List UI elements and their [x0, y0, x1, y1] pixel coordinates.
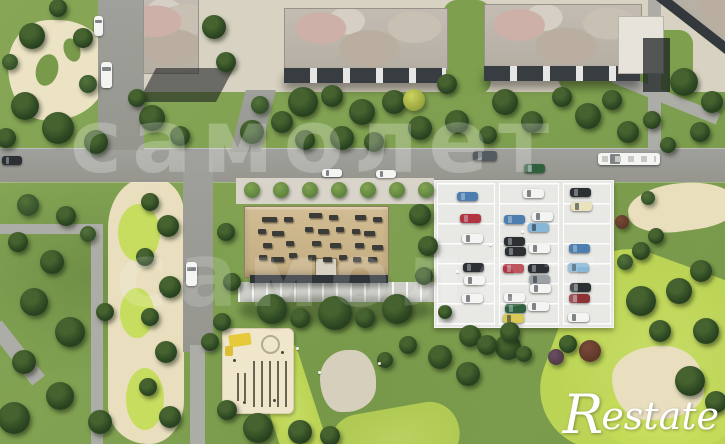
car [569, 244, 590, 253]
car-windshield [380, 171, 383, 177]
tree [273, 182, 289, 198]
car-windshield [461, 193, 464, 200]
rooftop-hvac-unit [352, 229, 360, 234]
lawn-inset-1 [32, 52, 62, 89]
tree [20, 288, 48, 316]
car [530, 284, 551, 293]
tree [705, 391, 725, 413]
rooftop-hvac-unit [262, 217, 277, 222]
tree [701, 91, 723, 113]
rooftop-hvac-unit [272, 231, 284, 236]
car-windshield [574, 189, 577, 196]
car [505, 247, 526, 256]
tree [693, 318, 719, 344]
rooftop-hvac-unit [259, 255, 267, 260]
playground-detail-dot [281, 351, 284, 354]
tree [403, 89, 425, 111]
rooftop-hvac-unit [258, 229, 266, 234]
tree [155, 341, 177, 363]
rooftop-hvac-unit [372, 245, 383, 250]
car [570, 283, 591, 292]
bus [598, 153, 660, 165]
car [570, 188, 591, 197]
playground-carousel [261, 335, 280, 354]
tree [349, 99, 375, 125]
tree [56, 206, 76, 226]
car-windshield [187, 267, 195, 271]
tree [257, 294, 287, 324]
tree [288, 420, 312, 444]
tree [399, 336, 417, 354]
car [571, 202, 592, 211]
car-windshield [532, 303, 535, 310]
tree [55, 317, 85, 347]
playground-pergola [253, 361, 287, 407]
car [529, 275, 550, 284]
car [2, 156, 22, 165]
car [524, 164, 545, 173]
tree [437, 74, 457, 94]
rooftop-hvac-unit [309, 213, 322, 218]
rooftop-hvac-unit [308, 255, 316, 260]
car [504, 215, 525, 224]
tree [217, 223, 235, 241]
tree [84, 130, 108, 154]
tree [552, 87, 572, 107]
tree [355, 308, 375, 328]
apartment-block-2-roof [284, 8, 448, 70]
playground-detail-dot [273, 399, 276, 402]
tree [479, 126, 497, 144]
tree [516, 346, 532, 362]
car-windshield [527, 190, 530, 197]
ground-detail-dot [489, 243, 492, 246]
playground-pergola-2 [237, 373, 249, 401]
tree [202, 15, 226, 39]
rooftop-hvac-unit [330, 243, 341, 248]
ground-detail-dot [378, 362, 381, 365]
tree [240, 120, 264, 144]
tree [548, 349, 564, 365]
car-windshield [102, 67, 110, 71]
tree [251, 96, 269, 114]
rooftop-hvac-unit [364, 231, 375, 236]
tree [492, 89, 518, 115]
sand-patch-center [320, 350, 376, 412]
tree [17, 194, 39, 216]
tree [213, 313, 231, 331]
car-windshield [574, 284, 577, 291]
rooftop-hvac-unit [284, 217, 293, 222]
tree [690, 122, 710, 142]
rooftop-hvac-unit [323, 257, 332, 262]
tree [330, 126, 354, 150]
tree [500, 322, 520, 342]
car-windshield [508, 238, 511, 245]
car [528, 223, 549, 232]
ground-detail-dot [296, 347, 299, 350]
tree [690, 260, 712, 282]
ground-detail-dot [456, 270, 459, 273]
car-windshield [528, 165, 531, 172]
car-windshield [534, 285, 537, 292]
car-windshield [507, 315, 510, 322]
tree [46, 382, 74, 410]
tree [409, 204, 431, 226]
tree [288, 87, 318, 117]
car [473, 151, 497, 161]
car-windshield [466, 235, 469, 242]
car-windshield [95, 20, 102, 23]
rooftop-hvac-unit [271, 257, 284, 262]
tree [139, 378, 157, 396]
ground-detail-dot [318, 371, 321, 374]
tree [141, 308, 159, 326]
tree [141, 193, 159, 211]
car [186, 262, 197, 286]
car [568, 263, 589, 272]
car-windshield [508, 216, 511, 223]
car-windshield [572, 264, 575, 271]
car [462, 294, 483, 303]
car [529, 244, 550, 253]
tree [675, 366, 705, 396]
car [528, 264, 549, 273]
tree [643, 111, 661, 129]
tree [632, 242, 650, 260]
tree [626, 286, 656, 316]
car [532, 212, 553, 221]
car [457, 192, 478, 201]
tree [318, 296, 352, 330]
apartment-block-1-roof [143, 0, 199, 74]
tree [19, 23, 45, 49]
second-road-path-extension [190, 345, 205, 444]
tree [617, 254, 633, 270]
tree [660, 137, 676, 153]
car-windshield [509, 248, 512, 255]
car-windshield [572, 314, 575, 321]
playground-detail-dot [233, 359, 236, 362]
tree [243, 413, 273, 443]
bus-roof-stripes [602, 156, 656, 162]
small-structure-shadow [643, 38, 670, 92]
tree [11, 92, 39, 120]
tree [216, 52, 236, 72]
tree [666, 278, 692, 304]
tree [136, 248, 154, 266]
tree [96, 303, 114, 321]
car-windshield [532, 265, 535, 272]
rooftop-hvac-unit [263, 243, 272, 248]
tree [364, 132, 384, 152]
apartment-block-3-facade [484, 66, 640, 81]
car [322, 169, 342, 177]
car [464, 276, 485, 285]
car-windshield [466, 295, 469, 302]
rooftop-hvac-unit [373, 217, 382, 222]
tree [615, 215, 629, 229]
tree [128, 89, 146, 107]
tree [79, 75, 97, 93]
tree [217, 400, 237, 420]
tree [408, 116, 432, 140]
car [568, 313, 589, 322]
rooftop-hvac-unit [305, 227, 313, 232]
tree [88, 410, 112, 434]
tree [477, 335, 497, 355]
car [528, 302, 549, 311]
car-windshield [532, 224, 535, 231]
rooftop-hvac-unit [286, 241, 294, 246]
car [569, 294, 590, 303]
rooftop-hvac-unit [355, 215, 366, 220]
tree [159, 276, 181, 298]
car-windshield [326, 170, 329, 176]
tree [418, 236, 438, 256]
rooftop-hvac-unit [289, 253, 297, 258]
car [94, 16, 103, 36]
tree [648, 228, 664, 244]
car [463, 263, 484, 272]
tree [617, 121, 639, 143]
tree [428, 345, 452, 369]
car-windshield [536, 213, 539, 220]
tree [170, 126, 190, 146]
playground-detail-dot [243, 401, 246, 404]
tree [157, 215, 179, 237]
tree [649, 320, 671, 342]
car-windshield [464, 215, 467, 222]
tree [579, 340, 601, 362]
car [503, 264, 524, 273]
tree [331, 182, 347, 198]
car-windshield [575, 203, 578, 210]
car [460, 214, 481, 223]
tree [73, 28, 93, 48]
tree [641, 191, 655, 205]
car [376, 170, 396, 178]
tree [159, 406, 181, 428]
rooftop-hvac-unit [368, 257, 377, 262]
second-vertical-road [183, 150, 213, 352]
rooftop-hvac-unit [355, 243, 364, 248]
car-windshield [478, 152, 482, 160]
car-windshield [533, 245, 536, 252]
tree [320, 426, 340, 444]
car [523, 189, 544, 198]
car-windshield [507, 265, 510, 272]
car-windshield [467, 264, 470, 271]
car-windshield [573, 295, 576, 302]
tree [602, 90, 622, 110]
aerial-site-render: самолет самолет Restate [0, 0, 725, 444]
tree [559, 335, 577, 353]
car-windshield [508, 294, 511, 301]
tree [418, 182, 434, 198]
car-windshield [509, 305, 512, 312]
tree [415, 267, 433, 285]
tree [223, 273, 241, 291]
tree [302, 182, 318, 198]
tree [382, 294, 412, 324]
tree [445, 110, 469, 134]
tree [389, 182, 405, 198]
car-windshield [573, 245, 576, 252]
tree [8, 232, 28, 252]
tree [290, 308, 310, 328]
tree [521, 111, 543, 133]
tree [40, 250, 64, 274]
car [504, 237, 525, 246]
car [504, 293, 525, 302]
rooftop-hvac-unit [339, 255, 347, 260]
tree [42, 112, 74, 144]
tree [244, 182, 260, 198]
tree [321, 85, 343, 107]
tree [139, 105, 165, 131]
tree [12, 350, 36, 374]
tree [377, 352, 393, 368]
parking-stall-column-left [437, 183, 495, 325]
tree [360, 182, 376, 198]
tree [295, 130, 315, 150]
central-building-entrance-canopy [250, 275, 388, 283]
tree [670, 68, 698, 96]
apartment-block-2-facade [284, 68, 446, 83]
car-windshield [533, 276, 536, 283]
tree [2, 54, 18, 70]
car-windshield [468, 277, 471, 284]
car [505, 304, 526, 313]
car-windshield [6, 157, 9, 164]
playground-equipment-yellow-2 [225, 346, 233, 356]
rooftop-hvac-unit [329, 215, 338, 220]
ground-detail-dot [521, 230, 524, 233]
tree [271, 111, 293, 133]
tree [456, 362, 480, 386]
tree [438, 305, 452, 319]
tree [80, 226, 96, 242]
tree [201, 333, 219, 351]
tree [575, 103, 601, 129]
rooftop-hvac-unit [336, 227, 344, 232]
car [462, 234, 483, 243]
rooftop-hvac-unit [318, 229, 329, 234]
rooftop-hvac-unit [353, 257, 361, 262]
car [101, 62, 112, 88]
rooftop-hvac-unit [312, 241, 321, 246]
